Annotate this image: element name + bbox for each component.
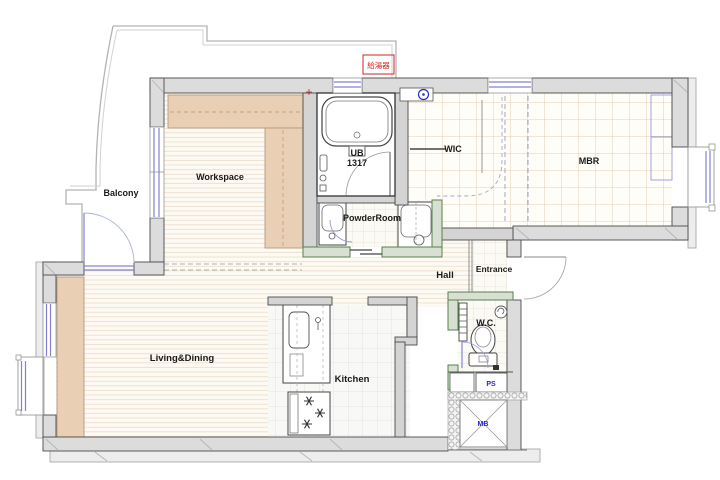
powder-sliding-door xyxy=(350,250,382,254)
window-top-wic xyxy=(488,78,532,93)
window-living xyxy=(43,303,56,357)
bay-window-living xyxy=(16,355,43,415)
living-counter xyxy=(57,277,84,437)
washbasin-icon xyxy=(319,202,346,245)
hall-label: Hall xyxy=(436,270,453,281)
kitchen-label: Kitchen xyxy=(335,374,370,385)
balcony-door xyxy=(84,213,134,270)
ub-label: UB xyxy=(351,148,364,158)
wc-label: W.C. xyxy=(476,318,496,328)
entrance-door xyxy=(524,257,566,299)
wic-label: WIC xyxy=(444,144,462,154)
bay-window-mbr xyxy=(688,144,715,211)
floor-plan-page: Balcony Workspace UB 1317 PowderRoom WIC… xyxy=(0,0,720,480)
living-floor xyxy=(56,267,268,437)
living-dining-label: Living&Dining xyxy=(150,353,215,364)
window-workspace xyxy=(150,127,164,218)
stove-icon xyxy=(288,392,330,435)
ps-label: PS xyxy=(486,381,496,388)
mbr-label: MBR xyxy=(579,156,600,166)
paper-holder-icon xyxy=(495,306,507,318)
washer-pan-icon xyxy=(398,202,434,247)
workspace-label: Workspace xyxy=(196,172,244,182)
water-heater-label: 給湯器 xyxy=(367,60,390,70)
workspace-desk-side xyxy=(265,128,303,248)
floor-plan-drawing: Balcony Workspace UB 1317 PowderRoom WIC… xyxy=(0,0,720,480)
ub-size-label: 1317 xyxy=(347,158,367,168)
wc-shelf-icon xyxy=(459,303,467,341)
window-top-bath xyxy=(333,78,362,93)
workspace-desk-top xyxy=(168,95,303,128)
powder-room-label: PowderRoom xyxy=(343,213,401,223)
mb-label: MB xyxy=(478,421,489,428)
balcony-label: Balcony xyxy=(103,188,138,198)
entrance-label: Entrance xyxy=(476,264,513,274)
detector-icon xyxy=(400,88,433,101)
